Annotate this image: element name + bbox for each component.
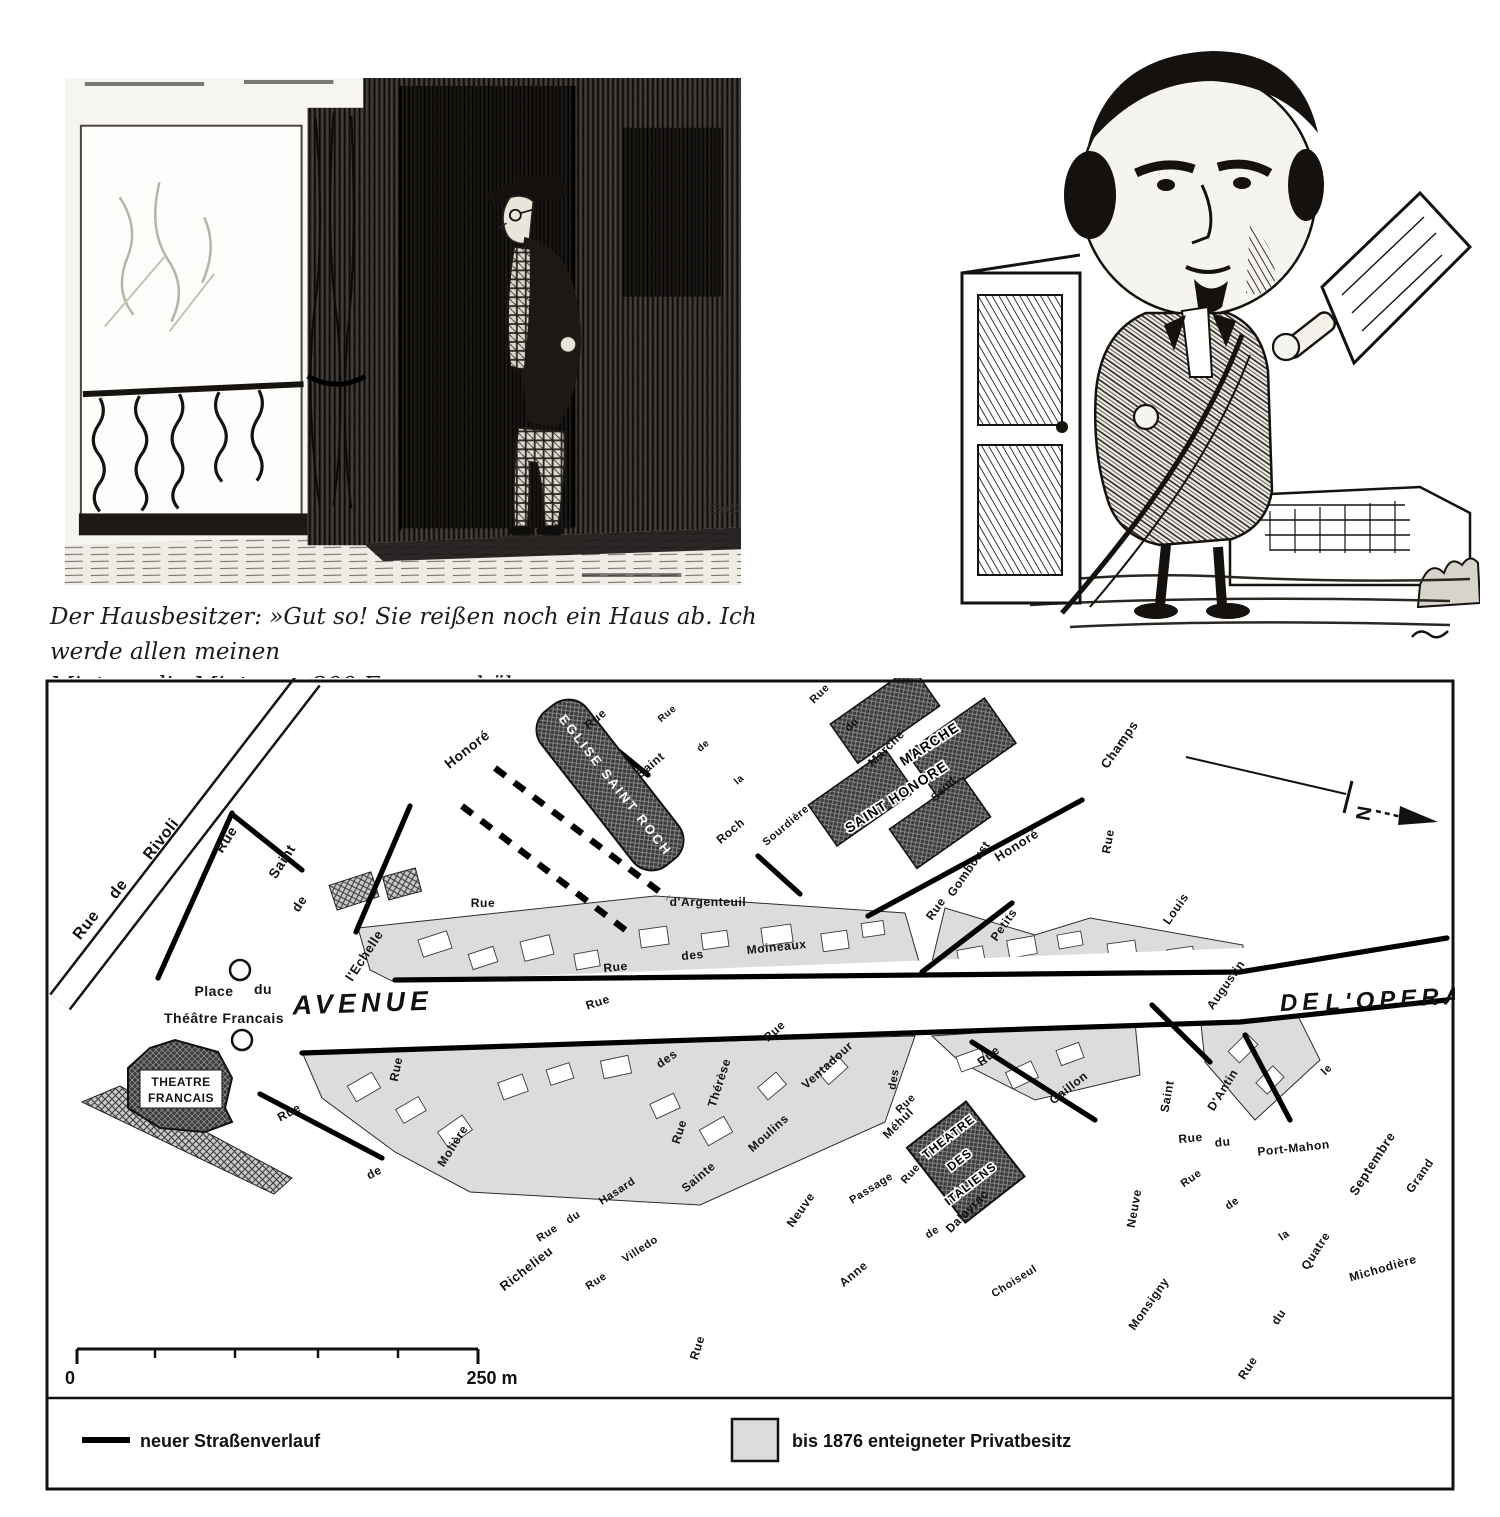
street-label: d'Argenteuil xyxy=(670,895,747,909)
scale-zero: 0 xyxy=(65,1368,75,1388)
window-opening xyxy=(81,126,302,524)
street-label: Place xyxy=(194,983,233,999)
fountain-circle-south xyxy=(232,1030,252,1050)
shoe-right xyxy=(1206,603,1250,619)
street-label: Rue xyxy=(603,959,629,975)
street-label: du xyxy=(1214,1134,1231,1150)
door-handle xyxy=(1056,421,1068,433)
legend-label-expropriated: bis 1876 enteigneter Privatbesitz xyxy=(792,1431,1071,1451)
figure-shadow xyxy=(488,534,579,548)
street-label: du xyxy=(254,981,272,997)
caricature-haussmann xyxy=(950,25,1480,660)
picture-frame xyxy=(622,128,721,297)
street-label: des xyxy=(681,947,705,963)
hair-side-left xyxy=(1064,151,1116,239)
legend-label-new-street: neuer Straßenverlauf xyxy=(140,1431,321,1451)
scanned-book-page: GoS xyxy=(0,0,1500,1517)
lithograph-landlord: GoS xyxy=(63,78,743,585)
artist-signature: GoS xyxy=(709,501,739,517)
fountain-circle-north xyxy=(230,960,250,980)
street-label: Rue xyxy=(471,896,495,910)
hand-left xyxy=(1134,405,1158,429)
street-label: FRANCAIS xyxy=(148,1091,214,1105)
caption-line-1: Der Hausbesitzer: »Gut so! Sie reißen no… xyxy=(50,600,770,669)
hair-side-right xyxy=(1288,149,1324,221)
street-label: THEATRE xyxy=(151,1075,210,1089)
window-sill xyxy=(79,513,308,535)
legend-area-swatch xyxy=(732,1419,778,1461)
scale-end: 250 m xyxy=(466,1368,517,1388)
eye-left xyxy=(1157,179,1175,191)
hand-right xyxy=(1273,334,1299,360)
street-label: AVENUE xyxy=(291,986,433,1021)
shoe-left xyxy=(1134,603,1178,619)
door-left xyxy=(962,255,1080,603)
street-label: Théâtre Francais xyxy=(164,1010,284,1026)
eye-right xyxy=(1233,177,1251,189)
street-label: DE xyxy=(1279,988,1324,1017)
map-avenue-de-lopera: N 0 250 m RuedeRivoliRueSaintdel'Echelle… xyxy=(45,678,1455,1492)
coat xyxy=(1095,313,1272,545)
hands-behind-back xyxy=(560,336,576,352)
street-label: Rue xyxy=(1178,1130,1204,1146)
